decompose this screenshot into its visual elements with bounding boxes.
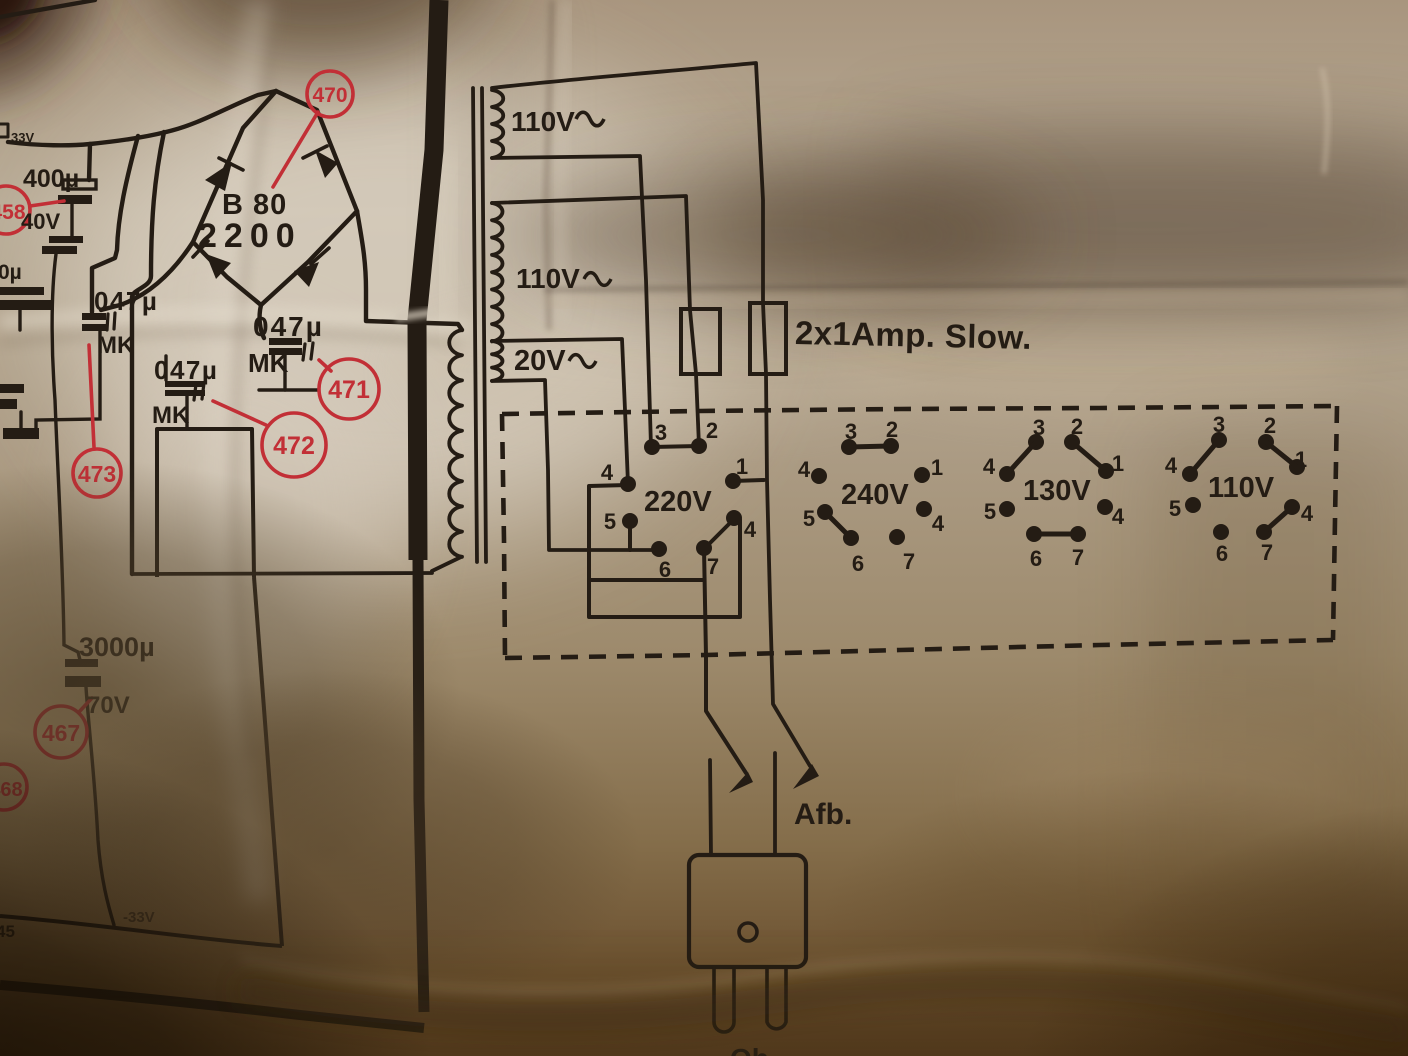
svg-text:7: 7 xyxy=(1261,540,1273,565)
svg-text:4: 4 xyxy=(798,457,811,482)
svg-text:2x1Amp. Slow.: 2x1Amp. Slow. xyxy=(795,314,1033,356)
svg-text:33V: 33V xyxy=(11,130,34,145)
svg-text:471: 471 xyxy=(328,376,370,404)
svg-text:240V: 240V xyxy=(841,479,909,511)
svg-text:2200: 2200 xyxy=(198,217,302,255)
svg-text:047µ: 047µ xyxy=(94,286,158,316)
svg-text:470: 470 xyxy=(312,84,347,107)
svg-text:047µ: 047µ xyxy=(154,355,218,385)
svg-text:MK: MK xyxy=(248,348,289,378)
svg-text:400µ: 400µ xyxy=(23,165,79,193)
svg-text:1: 1 xyxy=(1112,451,1124,476)
svg-text:MK: MK xyxy=(152,402,190,429)
svg-text:5: 5 xyxy=(984,499,996,524)
svg-text:110V: 110V xyxy=(511,106,575,137)
svg-text:4: 4 xyxy=(932,511,945,536)
svg-text:472: 472 xyxy=(273,432,315,460)
svg-text:6: 6 xyxy=(659,557,671,582)
svg-text:458: 458 xyxy=(0,201,26,224)
svg-text:7: 7 xyxy=(903,549,915,574)
svg-text:130V: 130V xyxy=(1023,475,1091,507)
svg-text:4: 4 xyxy=(1165,453,1178,478)
svg-text:4: 4 xyxy=(744,517,757,542)
svg-text:0µ: 0µ xyxy=(0,261,22,284)
svg-text:3: 3 xyxy=(1033,415,1045,440)
svg-text:6: 6 xyxy=(1030,546,1042,571)
svg-text:40V: 40V xyxy=(21,209,60,234)
svg-text:3: 3 xyxy=(845,419,857,444)
svg-text:7: 7 xyxy=(1072,545,1084,570)
svg-text:MK: MK xyxy=(97,332,135,359)
svg-text:5: 5 xyxy=(803,506,815,531)
svg-text:4: 4 xyxy=(1301,501,1314,526)
svg-text:20V: 20V xyxy=(514,345,566,377)
svg-text:4: 4 xyxy=(601,460,614,485)
svg-text:2: 2 xyxy=(1264,413,1276,438)
svg-text:2: 2 xyxy=(886,417,898,442)
svg-text:1: 1 xyxy=(931,455,943,480)
svg-text:5: 5 xyxy=(1169,496,1181,521)
svg-text:2: 2 xyxy=(1071,414,1083,439)
svg-text:3: 3 xyxy=(1213,412,1225,437)
svg-text:3: 3 xyxy=(655,420,667,445)
svg-text:5: 5 xyxy=(604,509,616,534)
svg-text:1: 1 xyxy=(736,454,748,479)
svg-text:220V: 220V xyxy=(644,486,712,518)
svg-text:2: 2 xyxy=(706,418,718,443)
svg-text:7: 7 xyxy=(707,554,719,579)
svg-text:4: 4 xyxy=(1112,504,1125,529)
svg-text:110V: 110V xyxy=(1208,472,1275,504)
svg-text:110V: 110V xyxy=(516,263,580,294)
svg-text:Afb.: Afb. xyxy=(794,798,852,831)
svg-text:6: 6 xyxy=(852,551,864,576)
svg-text:047µ: 047µ xyxy=(253,311,324,342)
svg-text:1: 1 xyxy=(1295,447,1307,472)
svg-text:6: 6 xyxy=(1216,541,1228,566)
svg-text:4: 4 xyxy=(983,454,996,479)
